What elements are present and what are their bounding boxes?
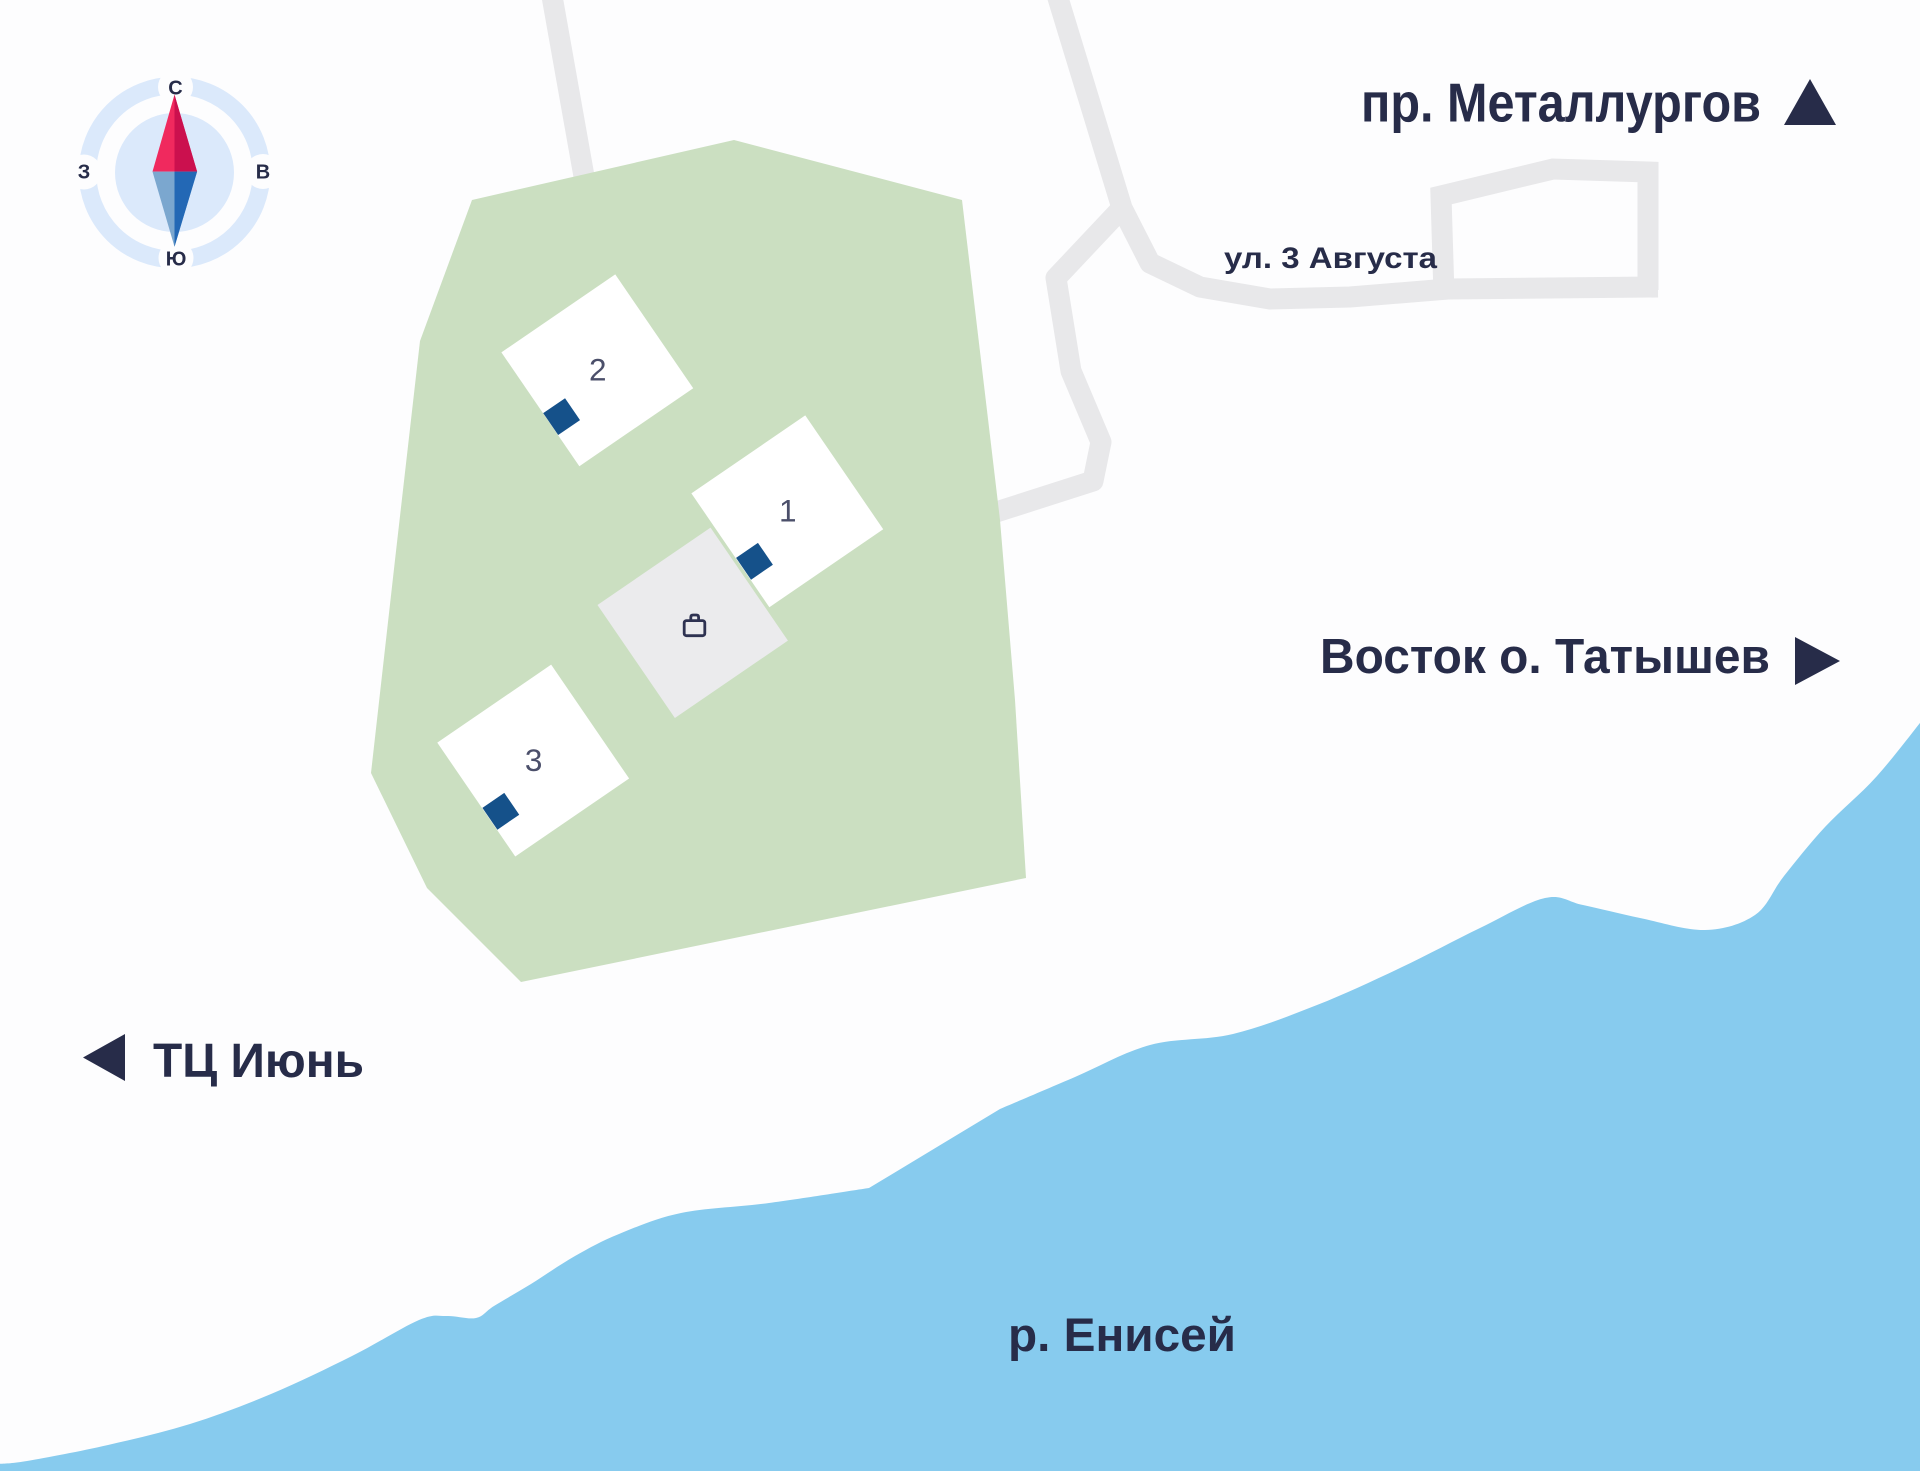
- svg-text:1: 1: [779, 493, 797, 529]
- svg-text:ул. 3 Августа: ул. 3 Августа: [1224, 242, 1437, 275]
- svg-text:2: 2: [589, 352, 607, 388]
- svg-text:З: З: [78, 162, 91, 184]
- svg-text:С: С: [168, 77, 182, 99]
- svg-text:пр. Металлургов: пр. Металлургов: [1361, 72, 1761, 134]
- svg-text:В: В: [256, 161, 270, 183]
- svg-text:Восток о. Татышев: Восток о. Татышев: [1320, 630, 1770, 684]
- svg-text:ТЦ Июнь: ТЦ Июнь: [153, 1035, 364, 1088]
- svg-text:3: 3: [525, 742, 543, 778]
- svg-text:р. Енисей: р. Енисей: [1008, 1308, 1236, 1361]
- svg-text:Ю: Ю: [166, 248, 187, 270]
